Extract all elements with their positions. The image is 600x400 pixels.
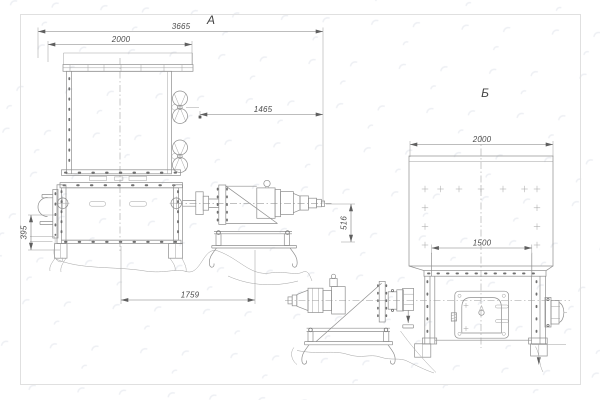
dim-label-hopper-width-a: 2000 [111,35,131,44]
drawing-canvas: А [0,0,600,400]
view-b-label: Б [481,86,489,100]
dim-label-base-span: 1759 [181,291,200,300]
dim-label-hopper-width-b: 2000 [472,135,492,144]
dim-label-left-height: 395 [20,225,29,239]
reference-dot [199,116,202,119]
dim-label-overall-width: 3665 [172,22,191,31]
technical-drawing-svg: А [0,0,600,400]
dim-label-right-height: 516 [340,216,349,230]
dim-label-drive-span: 1465 [254,105,273,114]
dim-label-outlet-width: 1500 [473,239,492,248]
view-a-label: А [206,13,215,27]
